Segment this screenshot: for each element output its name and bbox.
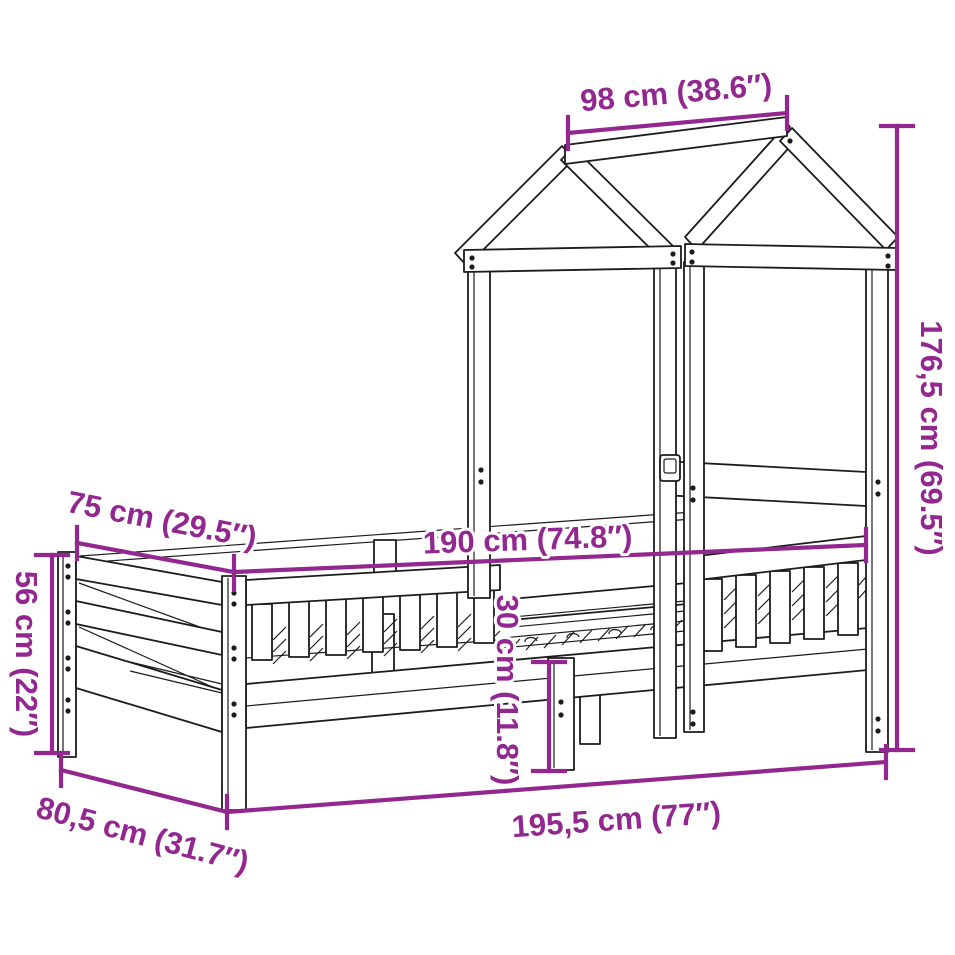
dimension-label-bed-length: 190 cm (74.8″) <box>422 518 633 560</box>
dimension-label-roof-top-width: 98 cm (38.6″) <box>579 67 774 119</box>
canopy-post-back-right <box>866 262 888 752</box>
dimension-label-overall-width: 80,5 cm (31.7″) <box>33 790 253 880</box>
gable-beam-front <box>464 246 681 272</box>
canopy-post-back-left <box>684 262 704 732</box>
bed-dimension-diagram: 98 cm (38.6″) 176,5 cm (69.5″) 75 cm (29… <box>0 0 955 955</box>
foot-rail-top <box>76 556 222 605</box>
dimension-label-clearance-height: 30 cm (11.8″) <box>490 595 525 786</box>
diagram-canvas: 98 cm (38.6″) 176,5 cm (69.5″) 75 cm (29… <box>0 0 955 955</box>
connector-latch <box>660 455 680 481</box>
dimension-label-footboard-height: 56 cm (22″) <box>9 571 44 738</box>
footboard <box>58 552 222 757</box>
gable-beam-back <box>685 244 898 270</box>
dimension-label-overall-height: 176,5 cm (69.5″) <box>914 320 949 555</box>
canopy-post-front-right <box>654 264 676 738</box>
foot-leg-back <box>58 552 76 757</box>
foot-leg-front <box>222 576 246 810</box>
guard-railing-head <box>698 536 866 651</box>
dimension-label-overall-length: 195,5 cm (77″) <box>511 795 723 845</box>
rafter-back-right <box>780 128 898 250</box>
dimension-overall-width: 80,5 cm (31.7″) <box>33 754 253 880</box>
roof-gable-front <box>455 146 681 272</box>
dimension-overall-height: 176,5 cm (69.5″) <box>881 126 949 750</box>
roof-gable-back <box>685 128 898 270</box>
guard-railing-center <box>246 565 500 660</box>
